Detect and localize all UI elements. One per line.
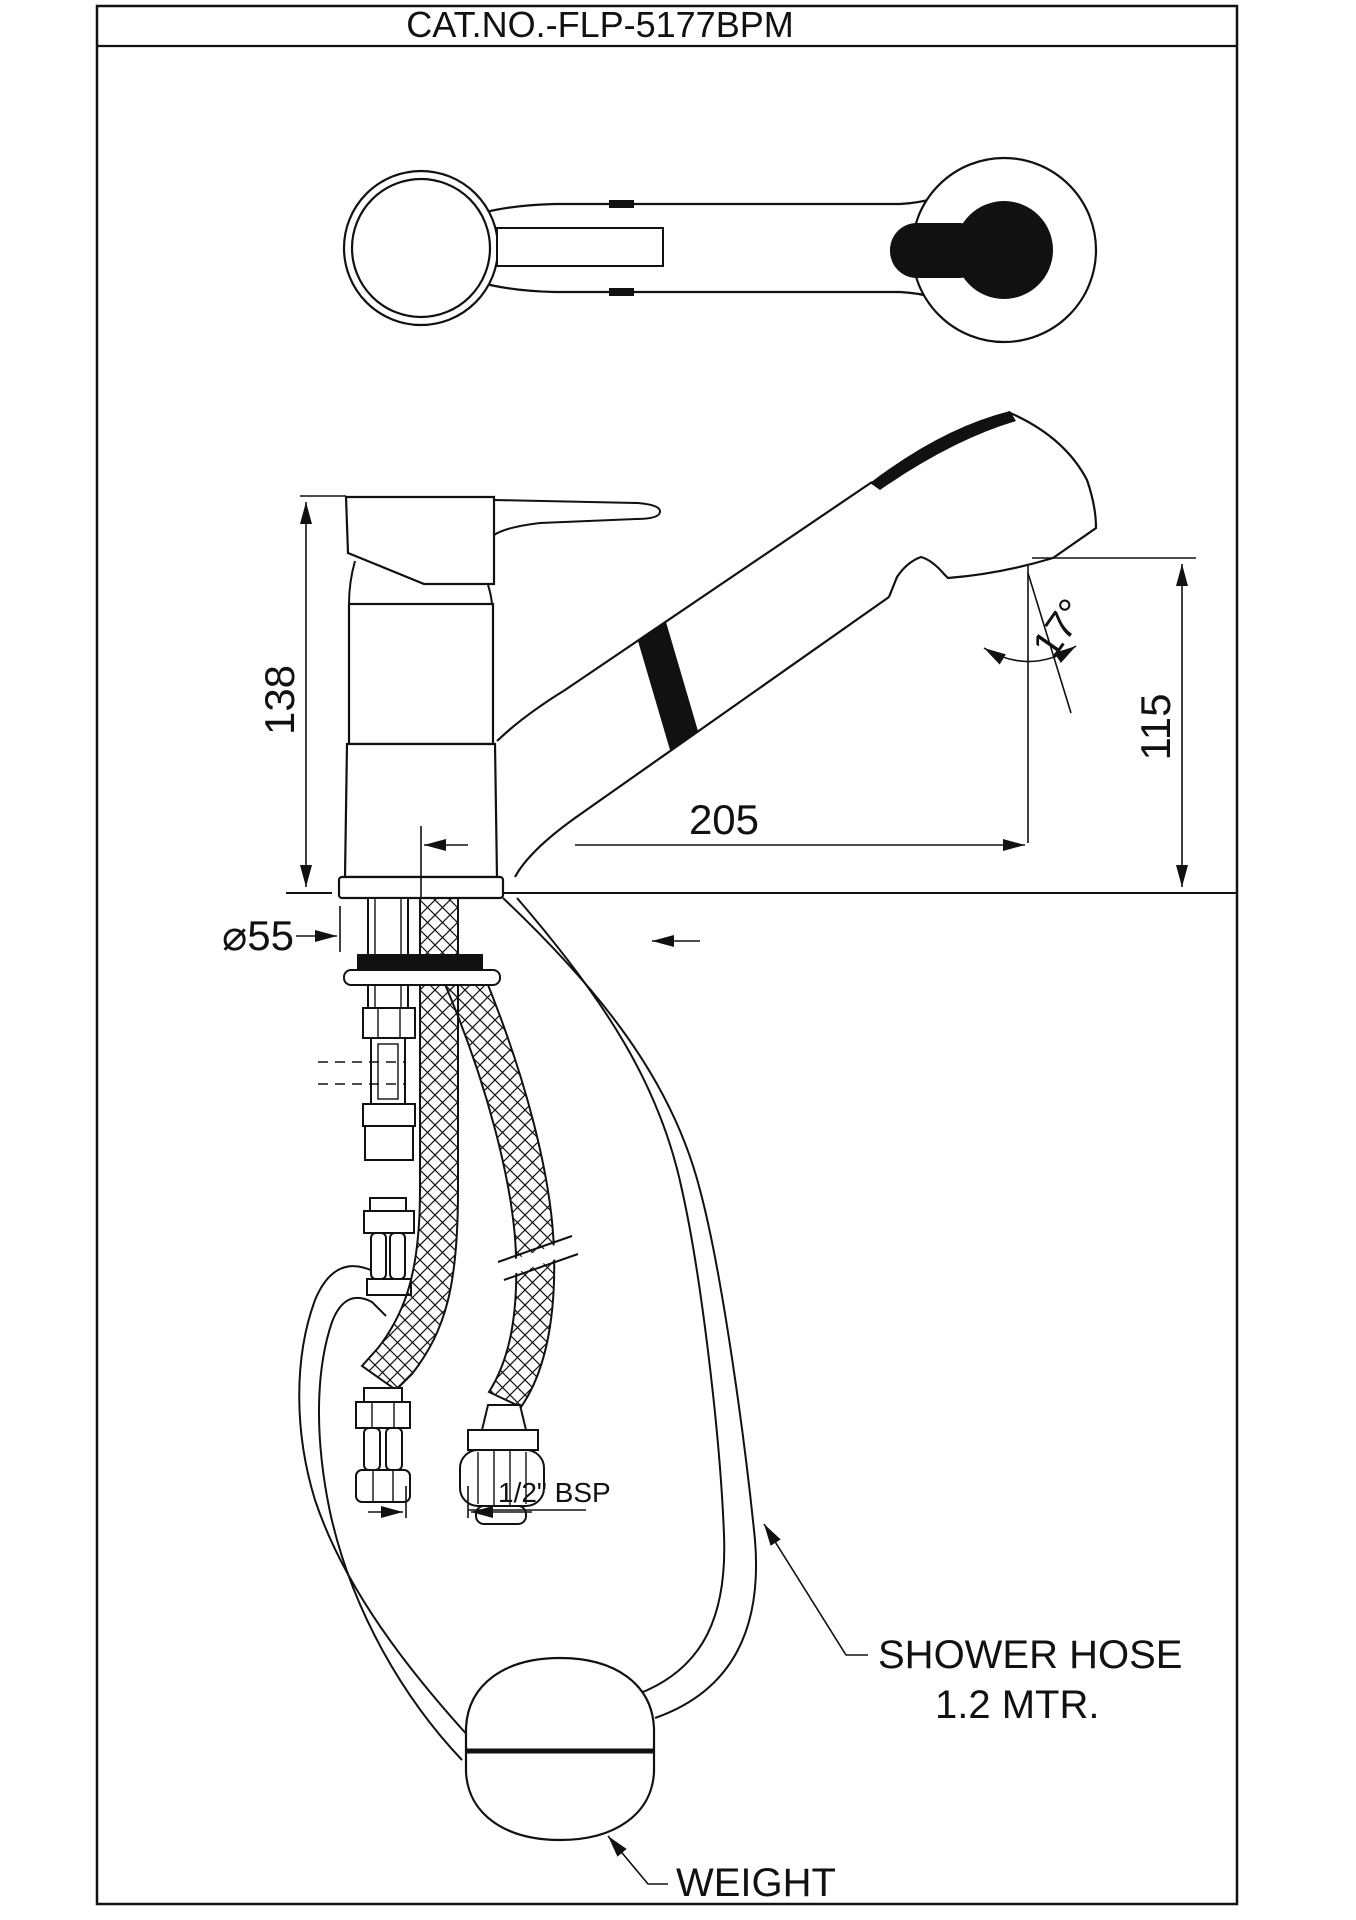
- dim-17-text: 17°: [1024, 591, 1095, 666]
- stud-hex-nut-1: [363, 1008, 415, 1038]
- plan-body-bottom-edge: [486, 284, 958, 310]
- handle-body: [346, 497, 494, 584]
- plan-handle-lever: [497, 228, 663, 266]
- top-view: [344, 158, 1096, 342]
- dim-diameter-55: ⌀55: [222, 906, 700, 959]
- body-upper-section: [349, 604, 493, 744]
- dim-138-text: 138: [256, 665, 303, 735]
- connector-cap: [370, 1198, 406, 1211]
- dim-205-text: 205: [689, 796, 759, 843]
- neck-left-curve: [349, 561, 355, 604]
- connector-cup-left: [371, 1233, 386, 1279]
- stud-block: [365, 1126, 413, 1160]
- connector-block: [364, 1211, 414, 1233]
- shower-hose-label-line2: 1.2 MTR.: [935, 1683, 1099, 1727]
- dim-bsp-text: 1/2" BSP: [498, 1477, 611, 1508]
- plan-base-outer-circle: [344, 171, 498, 325]
- rubber-gasket: [357, 954, 483, 970]
- braided-hose-right: [444, 970, 554, 1407]
- stud-hex-nut-2: [363, 1104, 415, 1126]
- hose-end-fitting-left: [356, 1388, 410, 1502]
- plan-body-top-edge: [486, 186, 958, 212]
- spout-body-fill: [497, 412, 1096, 877]
- drawing-page: CAT.NO.-FLP-5177BPM: [0, 0, 1356, 1920]
- dim-height-138: 138: [256, 496, 346, 887]
- shower-hose-label-line1: SHOWER HOSE: [878, 1633, 1182, 1677]
- neck-right-curve: [488, 585, 492, 604]
- side-view: [286, 411, 1237, 898]
- dim-115-text: 115: [1132, 694, 1179, 761]
- dim-angle-17: 17°: [984, 566, 1095, 843]
- stud-tube: [368, 898, 408, 1008]
- hose-weight: [466, 1658, 654, 1840]
- drawing-title: CAT.NO.-FLP-5177BPM: [406, 4, 793, 45]
- plan-notch-bottom: [609, 288, 634, 296]
- dim-55-text: ⌀55: [222, 912, 294, 959]
- label-weight: WEIGHT: [608, 1836, 836, 1905]
- plan-spray-keyhole: [890, 201, 1053, 299]
- horseshoe-washer: [344, 970, 500, 985]
- drawing-canvas: CAT.NO.-FLP-5177BPM: [0, 0, 1356, 1920]
- handle-lever: [494, 500, 660, 535]
- under-deck-assembly: [299, 898, 756, 1840]
- weight-label: WEIGHT: [676, 1861, 836, 1905]
- label-shower-hose: SHOWER HOSE 1.2 MTR.: [764, 1524, 1182, 1727]
- connector-cup-right: [390, 1233, 405, 1279]
- connector-base: [367, 1279, 411, 1295]
- plan-notch-top: [609, 200, 634, 208]
- stud-rod-core: [378, 1044, 398, 1099]
